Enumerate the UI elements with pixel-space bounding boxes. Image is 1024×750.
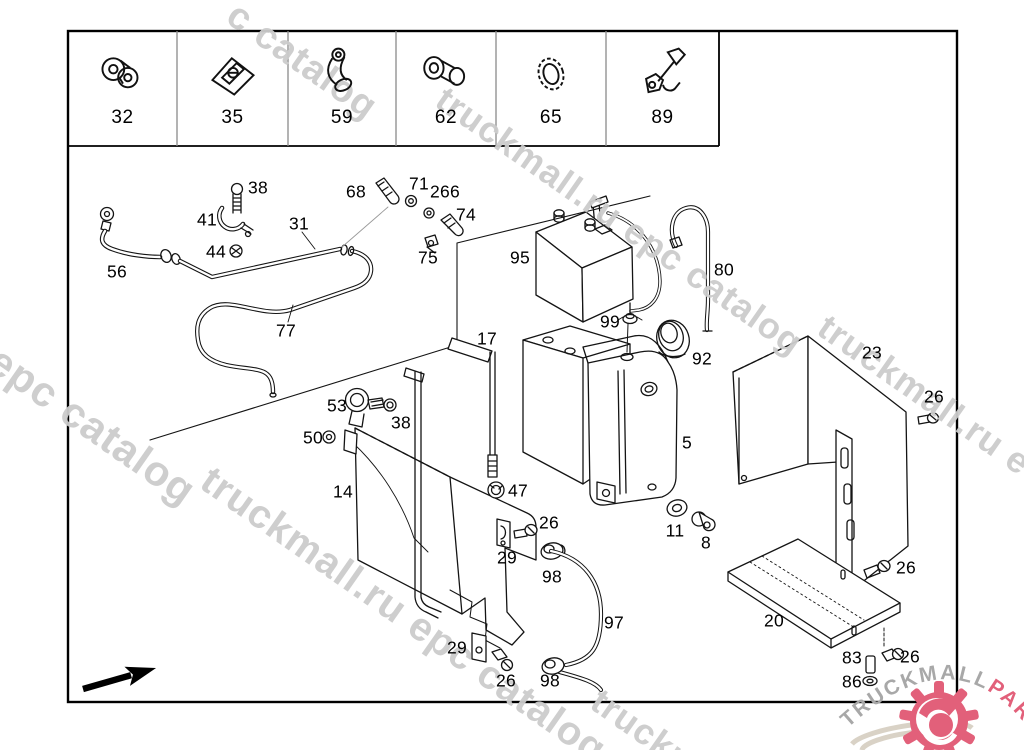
fuel-line-31-77 (180, 232, 371, 397)
clamp-53-group (323, 389, 396, 444)
truckmall-logo: TRUCKMALLPARTS (0, 0, 1024, 750)
logo-text: TRUCKMALLPARTS (0, 0, 1024, 732)
battery-95 (536, 196, 660, 322)
exploded-parts-diagram: TRUCKMALLPARTS (0, 0, 1024, 750)
rod-17 (448, 338, 497, 477)
direction-arrow-icon (80, 658, 159, 698)
parts-catalog-page: TRUCKMALLPARTS c catalogtruckmall.ru epc… (0, 0, 1024, 750)
clamp-41 (219, 208, 253, 237)
fittings-68-75 (342, 178, 463, 253)
pipe-80 (670, 207, 712, 331)
nut-44 (230, 245, 242, 257)
plug-8 (692, 512, 715, 531)
bracket-29-lower (472, 633, 513, 671)
bolt-38 (232, 184, 243, 214)
washer-tank-5 (583, 336, 677, 506)
bracket-29-upper (497, 519, 537, 548)
nut-47 (488, 482, 504, 498)
ground-cable-56 (101, 208, 182, 266)
grommet-11 (665, 498, 688, 519)
bolt-26-panel23 (918, 413, 939, 424)
strap-rod (404, 368, 441, 618)
